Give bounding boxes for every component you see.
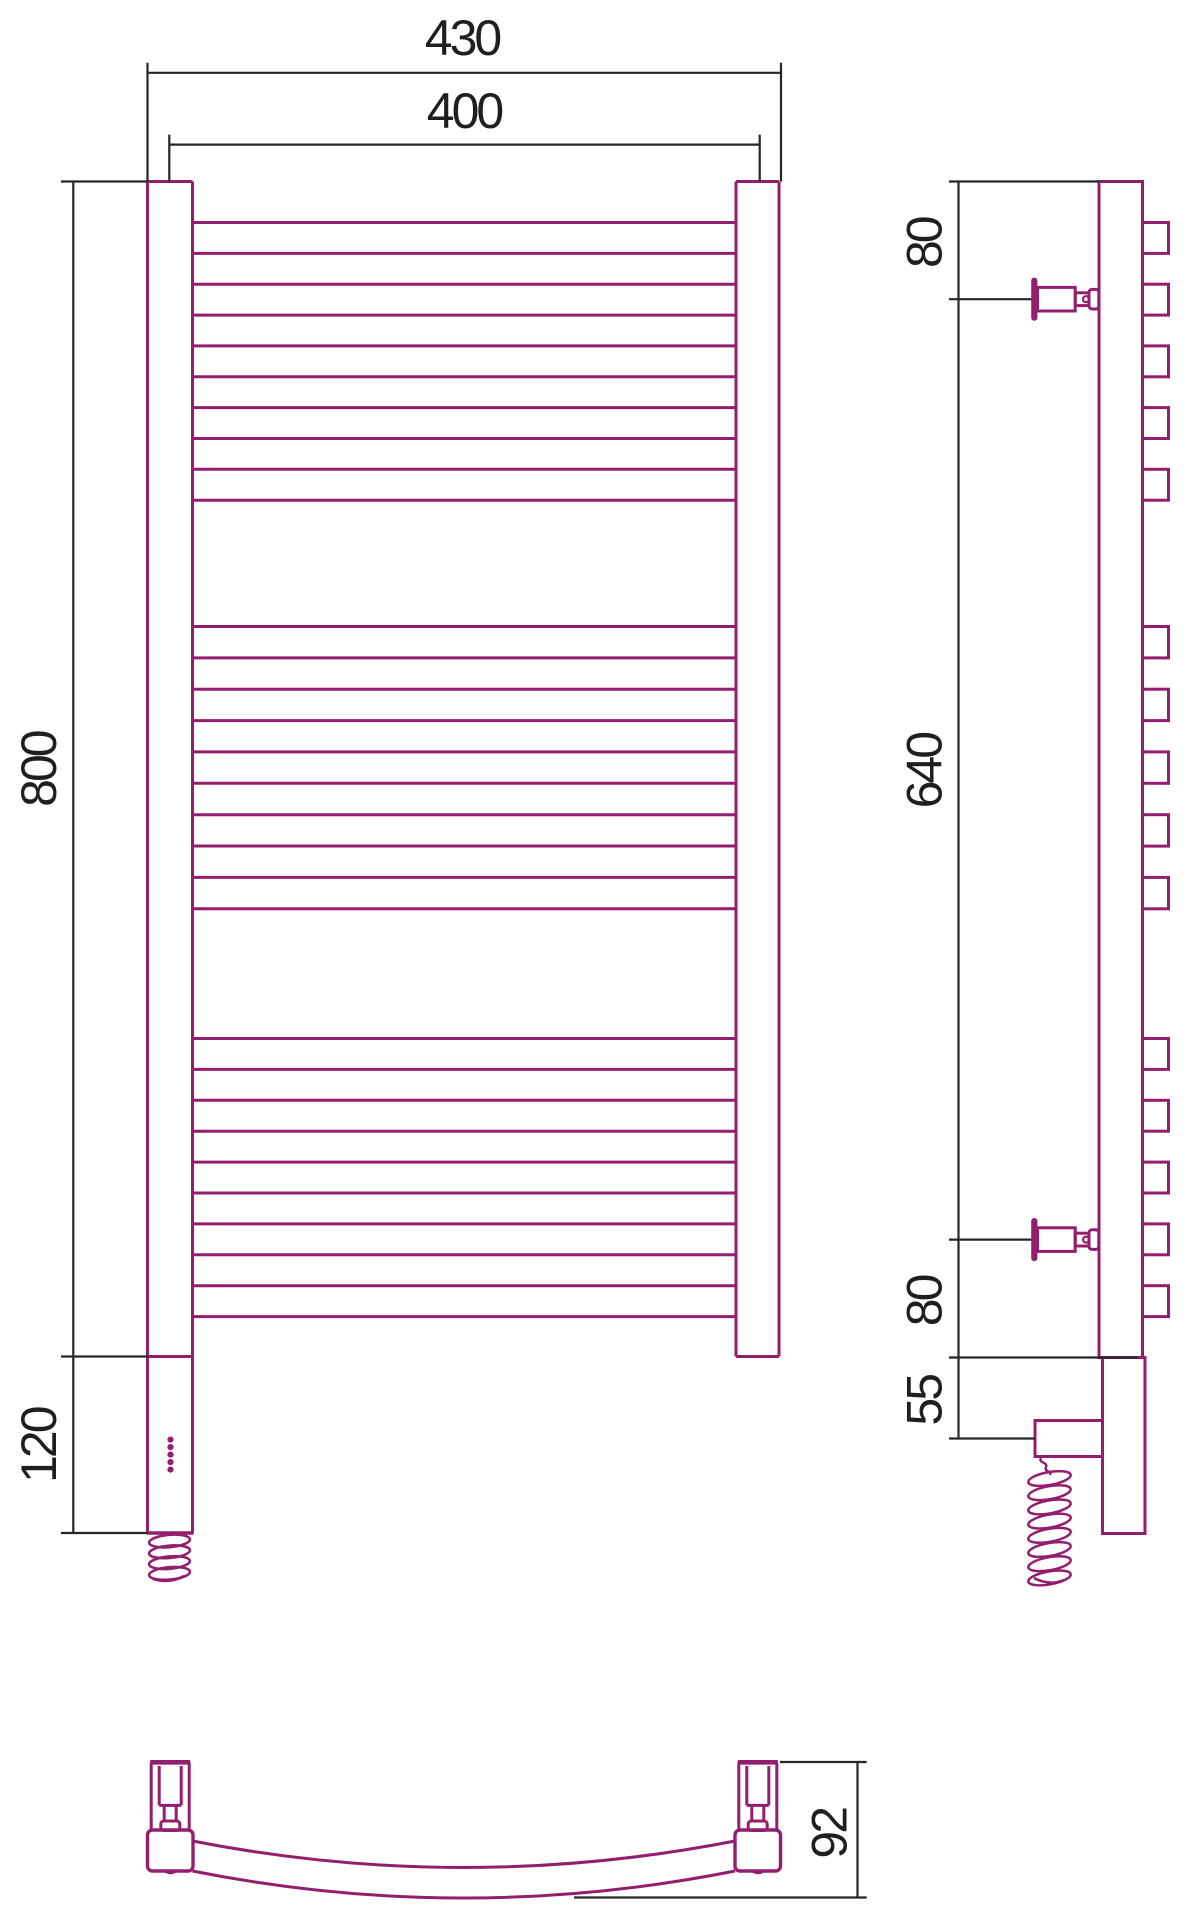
svg-text:800: 800: [11, 731, 67, 807]
svg-text:120: 120: [11, 1407, 67, 1483]
svg-text:55: 55: [896, 1375, 952, 1426]
svg-text:430: 430: [425, 10, 501, 66]
svg-text:92: 92: [802, 1808, 858, 1859]
svg-text:400: 400: [427, 83, 503, 139]
svg-text:640: 640: [896, 733, 952, 809]
svg-text:80: 80: [896, 217, 952, 268]
svg-text:80: 80: [896, 1275, 952, 1326]
